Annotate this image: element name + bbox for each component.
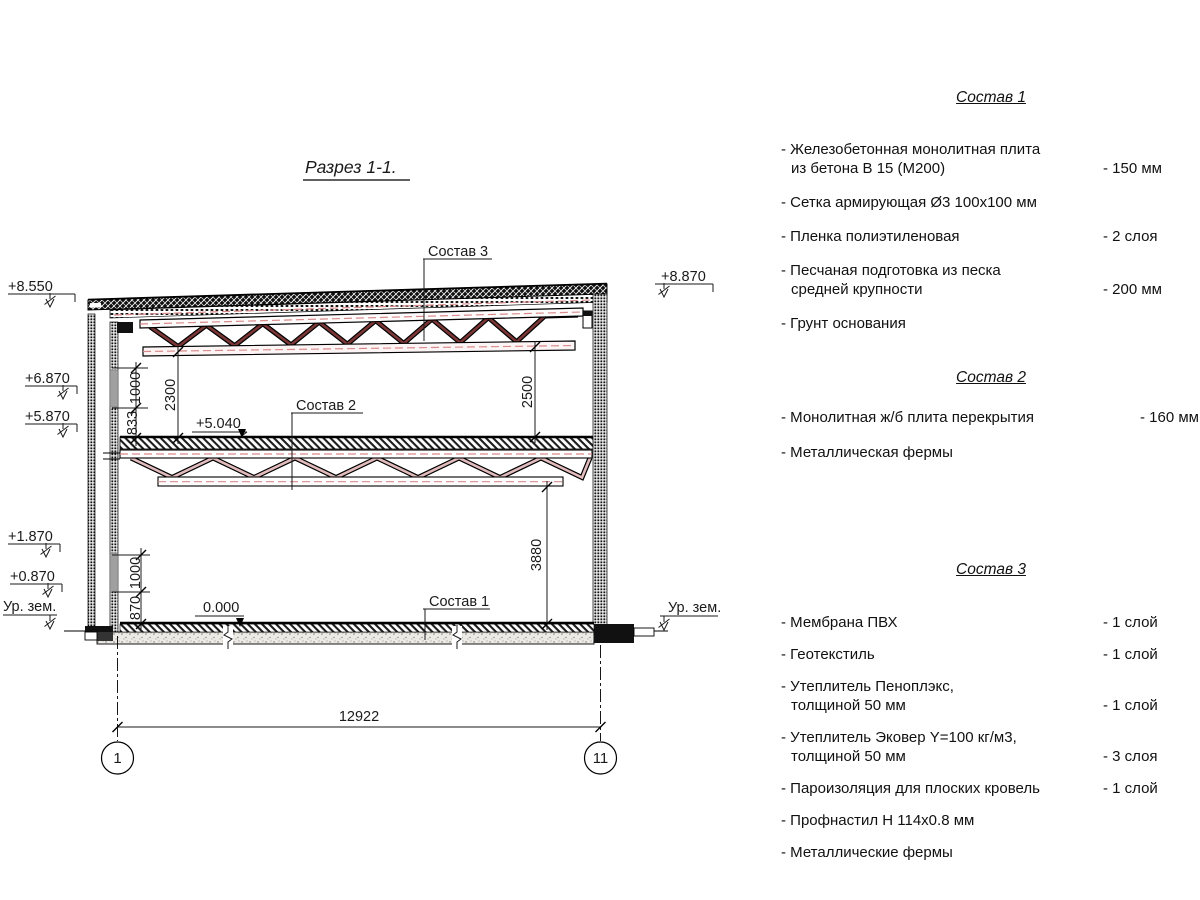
- material-text-line2: толщиной 50 мм: [781, 747, 1103, 766]
- material-value: - 150 мм: [1103, 159, 1162, 178]
- material-item: - Металлические фермы: [781, 843, 1200, 862]
- material-item: - Профнастил Н 114х0.8 мм: [781, 811, 1200, 830]
- material-value: - 1 слой: [1103, 645, 1158, 664]
- material-text: - Пароизоляция для плоских кровель: [781, 780, 1040, 797]
- dim-12922: 12922: [339, 709, 379, 725]
- material-value: - 200 мм: [1103, 280, 1162, 299]
- composition-section-1: Состав 1 - Железобетонная монолитная пли…: [781, 88, 1200, 348]
- material-value: - 1 слой: [1103, 696, 1158, 715]
- right-wall: [593, 294, 607, 632]
- dim-1000-lower: 1000: [128, 557, 144, 589]
- material-text: - Пленка полиэтиленовая: [781, 228, 960, 245]
- material-text: - Сетка армирующая Ø3 100х100 мм: [781, 194, 1037, 211]
- dim-2500: 2500: [520, 376, 536, 408]
- material-text: - Монолитная ж/б плита перекрытия: [781, 409, 1034, 426]
- material-text: - Геотекстиль: [781, 646, 875, 663]
- material-value: - 1 слой: [1103, 613, 1158, 632]
- material-item: - Пароизоляция для плоских кровель - 1 с…: [781, 779, 1200, 798]
- drawing-title: Разрез 1-1.: [305, 157, 397, 177]
- ground-level-left: Ур. зем.: [3, 599, 56, 615]
- material-value: - 3 слоя: [1103, 747, 1158, 766]
- material-item: - Утеплитель Пеноплэкс, толщиной 50 мм -…: [781, 677, 1200, 715]
- level-0000: 0.000: [203, 600, 239, 616]
- elevation-0870: +0.870: [10, 569, 55, 585]
- material-item: - Утеплитель Эковер Y=100 кг/м3, толщино…: [781, 728, 1200, 766]
- drawing-title-block: Разрез 1-1.: [303, 157, 410, 180]
- material-text: - Железобетонная монолитная плита: [781, 141, 1040, 158]
- ground-level-right: Ур. зем.: [668, 600, 721, 616]
- material-item: - Железобетонная монолитная плита из бет…: [781, 140, 1200, 178]
- dimension-lines: 1000 833 2300 2500 3880 1000 870 12922: [112, 341, 606, 732]
- floor-truss-diagonals: [131, 458, 590, 478]
- material-text: - Металлическая фермы: [781, 444, 953, 461]
- elevation-1870: +1.870: [8, 529, 53, 545]
- material-value: - 160 мм: [1140, 408, 1199, 427]
- grid-label-11: 11: [593, 750, 609, 767]
- elevation-6870: +6.870: [25, 371, 70, 387]
- section-heading: Состав 2: [781, 368, 1200, 387]
- elevation-8550: +8.550: [8, 279, 53, 295]
- material-value: - 1 слой: [1103, 779, 1158, 798]
- material-text: - Утеплитель Пеноплэкс,: [781, 678, 954, 695]
- callout-sostav-1: Состав 1: [429, 594, 489, 610]
- middle-slab: [120, 437, 593, 449]
- elevation-8870: +8.870: [661, 269, 706, 285]
- dim-3880: 3880: [529, 539, 545, 571]
- material-item: - Металлическая фермы: [781, 443, 1200, 462]
- grid-label-1: 1: [113, 750, 121, 767]
- material-item: - Пленка полиэтиленовая - 2 слоя: [781, 227, 1200, 246]
- material-text-line2: из бетона В 15 (М200): [781, 159, 1103, 178]
- left-wall: [88, 314, 118, 632]
- callout-sostav-2: Состав 2: [296, 398, 356, 414]
- material-text: - Грунт основания: [781, 315, 906, 332]
- dim-1000-upper: 1000: [128, 372, 144, 404]
- section-drawing: 1 11 1000 833 2300 2500 3880 1000 870 12…: [0, 0, 780, 900]
- dim-833: 833: [125, 411, 141, 435]
- material-text: - Профнастил Н 114х0.8 мм: [781, 812, 974, 829]
- dim-870: 870: [128, 596, 144, 620]
- material-value: - 2 слоя: [1103, 227, 1158, 246]
- grid-axes: 1 11: [102, 636, 617, 774]
- material-item: - Песчаная подготовка из песка средней к…: [781, 261, 1200, 299]
- material-item: - Монолитная ж/б плита перекрытия - 160 …: [781, 408, 1200, 427]
- material-text-line2: средней крупности: [781, 280, 1103, 299]
- composition-section-3: Состав 3 - Мембрана ПВХ - 1 слой - Геоте…: [781, 560, 1200, 875]
- material-text: - Песчаная подготовка из песка: [781, 262, 1001, 279]
- material-item: - Сетка армирующая Ø3 100х100 мм: [781, 193, 1200, 212]
- composition-section-2: Состав 2 - Монолитная ж/б плита перекрыт…: [781, 368, 1200, 478]
- section-heading: Состав 1: [781, 88, 1200, 107]
- material-text: - Мембрана ПВХ: [781, 614, 898, 631]
- material-text: - Металлические фермы: [781, 844, 953, 861]
- material-item: - Геотекстиль - 1 слой: [781, 645, 1200, 664]
- material-text-line2: толщиной 50 мм: [781, 696, 1103, 715]
- material-text: - Утеплитель Эковер Y=100 кг/м3,: [781, 729, 1017, 746]
- level-5040: +5.040: [196, 416, 241, 432]
- material-item: - Грунт основания: [781, 314, 1200, 333]
- section-heading: Состав 3: [781, 560, 1200, 579]
- dim-2300: 2300: [163, 379, 179, 411]
- elevation-5870: +5.870: [25, 409, 70, 425]
- material-item: - Мембрана ПВХ - 1 слой: [781, 613, 1200, 632]
- callout-sostav-3: Состав 3: [428, 244, 488, 260]
